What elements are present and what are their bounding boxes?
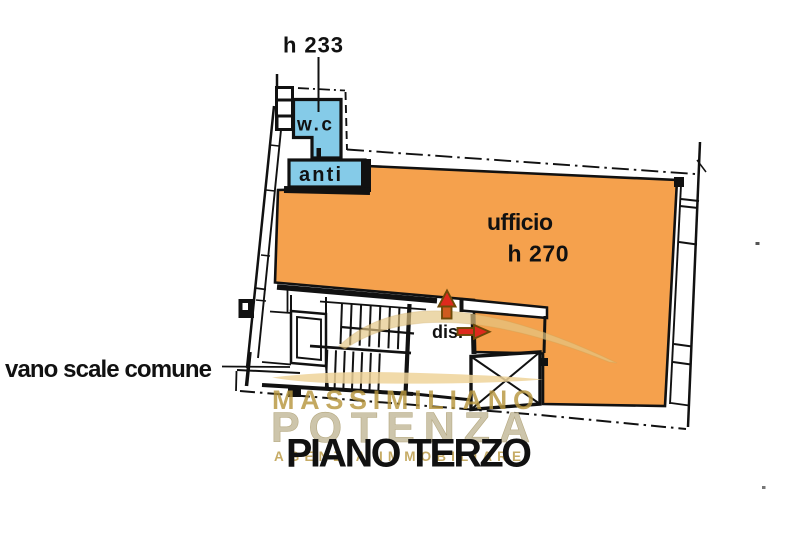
svg-text:ufficio: ufficio bbox=[487, 209, 553, 235]
svg-text:h 270: h 270 bbox=[508, 241, 569, 267]
svg-text:h 233: h 233 bbox=[283, 33, 343, 58]
svg-text:vano scale comune: vano scale comune bbox=[5, 356, 212, 383]
svg-text:w.c: w.c bbox=[296, 115, 332, 136]
svg-text:PIANO TERZO: PIANO TERZO bbox=[286, 432, 532, 476]
svg-text:anti: anti bbox=[299, 164, 341, 186]
